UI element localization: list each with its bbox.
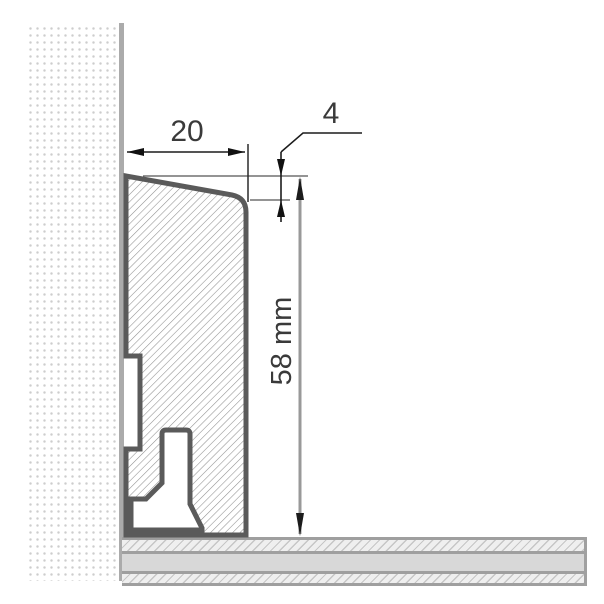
dimension-bevel-arrow-up (277, 200, 285, 217)
dimension-height-arrow-up (296, 177, 304, 200)
dimension-bevel-label: 4 (301, 98, 361, 130)
dimension-width-label: 20 (147, 116, 227, 148)
dimension-bevel-leader-line (281, 133, 362, 152)
dimension-bevel-arrow-down (277, 159, 285, 176)
skirting-board-technical-drawing: 20 4 58 mm (0, 0, 604, 604)
dimension-height-arrow-down (296, 513, 304, 536)
dimension-height-label: 58 mm (266, 276, 298, 406)
dimension-width-arrow-left (127, 148, 144, 156)
drawing-layer (0, 0, 604, 604)
dimension-width-arrow-right (228, 148, 245, 156)
